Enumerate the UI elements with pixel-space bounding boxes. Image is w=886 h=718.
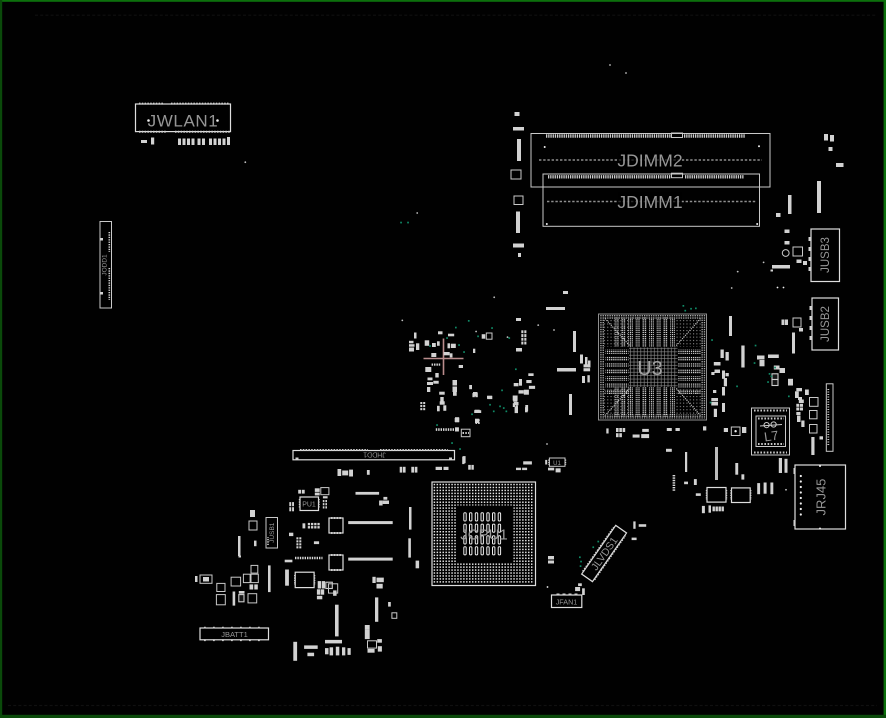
svg-text:JODD1: JODD1 [102, 254, 109, 276]
svg-text:JBATT1: JBATT1 [221, 630, 248, 639]
svg-text:L7: L7 [763, 428, 779, 445]
svg-text:JHDD1: JHDD1 [363, 451, 386, 458]
svg-text:JUSB1: JUSB1 [269, 522, 276, 543]
svg-text:JUSB2: JUSB2 [820, 306, 832, 342]
svg-text:JDIMM1: JDIMM1 [617, 192, 682, 212]
svg-text:JUSB3: JUSB3 [820, 237, 832, 273]
svg-text:JCPU1: JCPU1 [460, 527, 508, 544]
svg-text:U3: U3 [637, 358, 663, 380]
svg-text:JWLAN1: JWLAN1 [148, 112, 219, 131]
svg-text:U1: U1 [553, 461, 561, 467]
svg-text:JRJ45: JRJ45 [814, 479, 829, 516]
svg-text:JDIMM2: JDIMM2 [617, 151, 682, 171]
svg-text:PU1: PU1 [302, 502, 316, 509]
svg-text:JFAN1: JFAN1 [556, 598, 578, 607]
